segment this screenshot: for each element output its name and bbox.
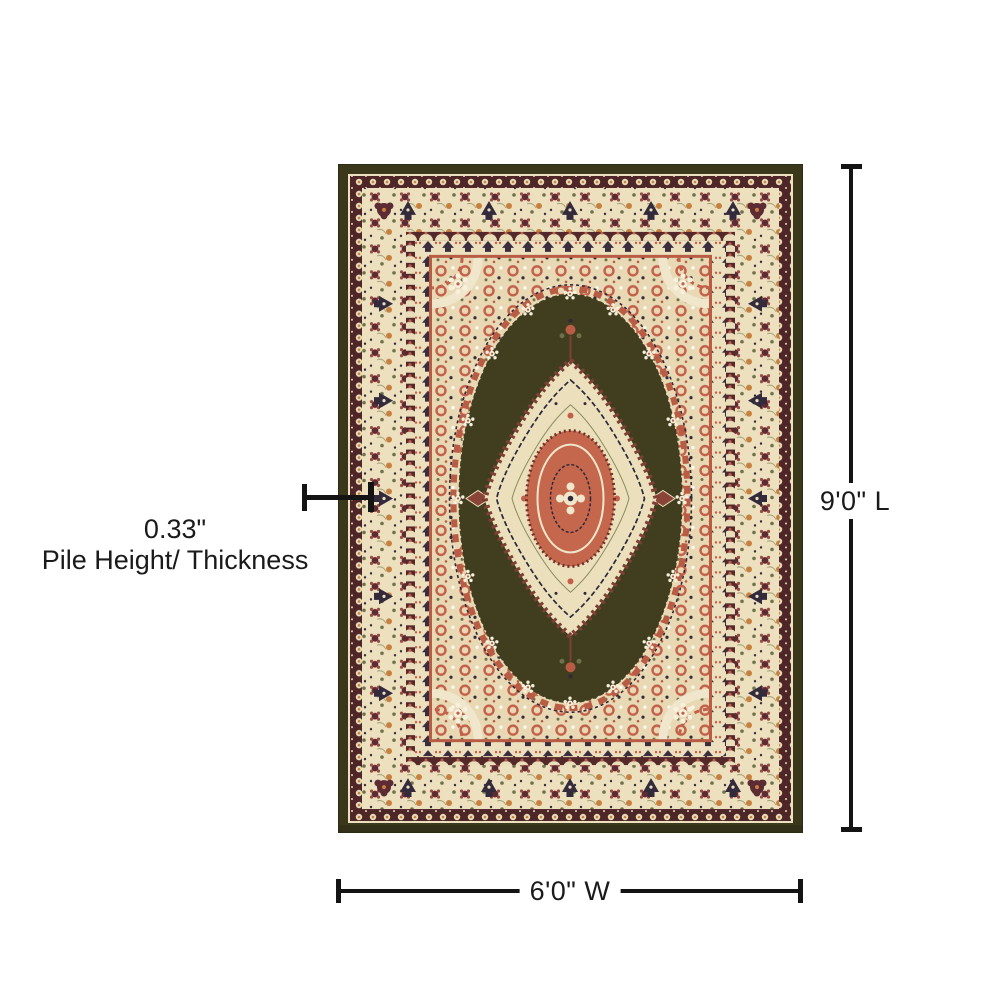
pile-height-pointer-line xyxy=(304,495,372,500)
length-label: 9'0" L xyxy=(810,483,900,519)
pile-height-value: 0.33" xyxy=(25,514,325,545)
product-dimension-diagram: 9'0" L 6'0" W 0.33" Pile Height/ Thickne… xyxy=(0,0,1000,1000)
width-dimension-left-tick xyxy=(336,879,341,903)
pile-height-pointer-right-tick xyxy=(368,482,374,512)
rug-illustration xyxy=(338,164,803,833)
pile-height-caption: 0.33" Pile Height/ Thickness xyxy=(25,514,325,576)
length-dimension-bottom-tick xyxy=(841,827,862,832)
length-dimension-top-tick xyxy=(841,164,862,169)
pile-height-pointer-left-tick xyxy=(302,484,307,511)
pile-height-label: Pile Height/ Thickness xyxy=(25,545,325,576)
width-label: 6'0" W xyxy=(520,873,621,909)
width-dimension-right-tick xyxy=(798,879,803,903)
rug-image xyxy=(338,164,803,833)
